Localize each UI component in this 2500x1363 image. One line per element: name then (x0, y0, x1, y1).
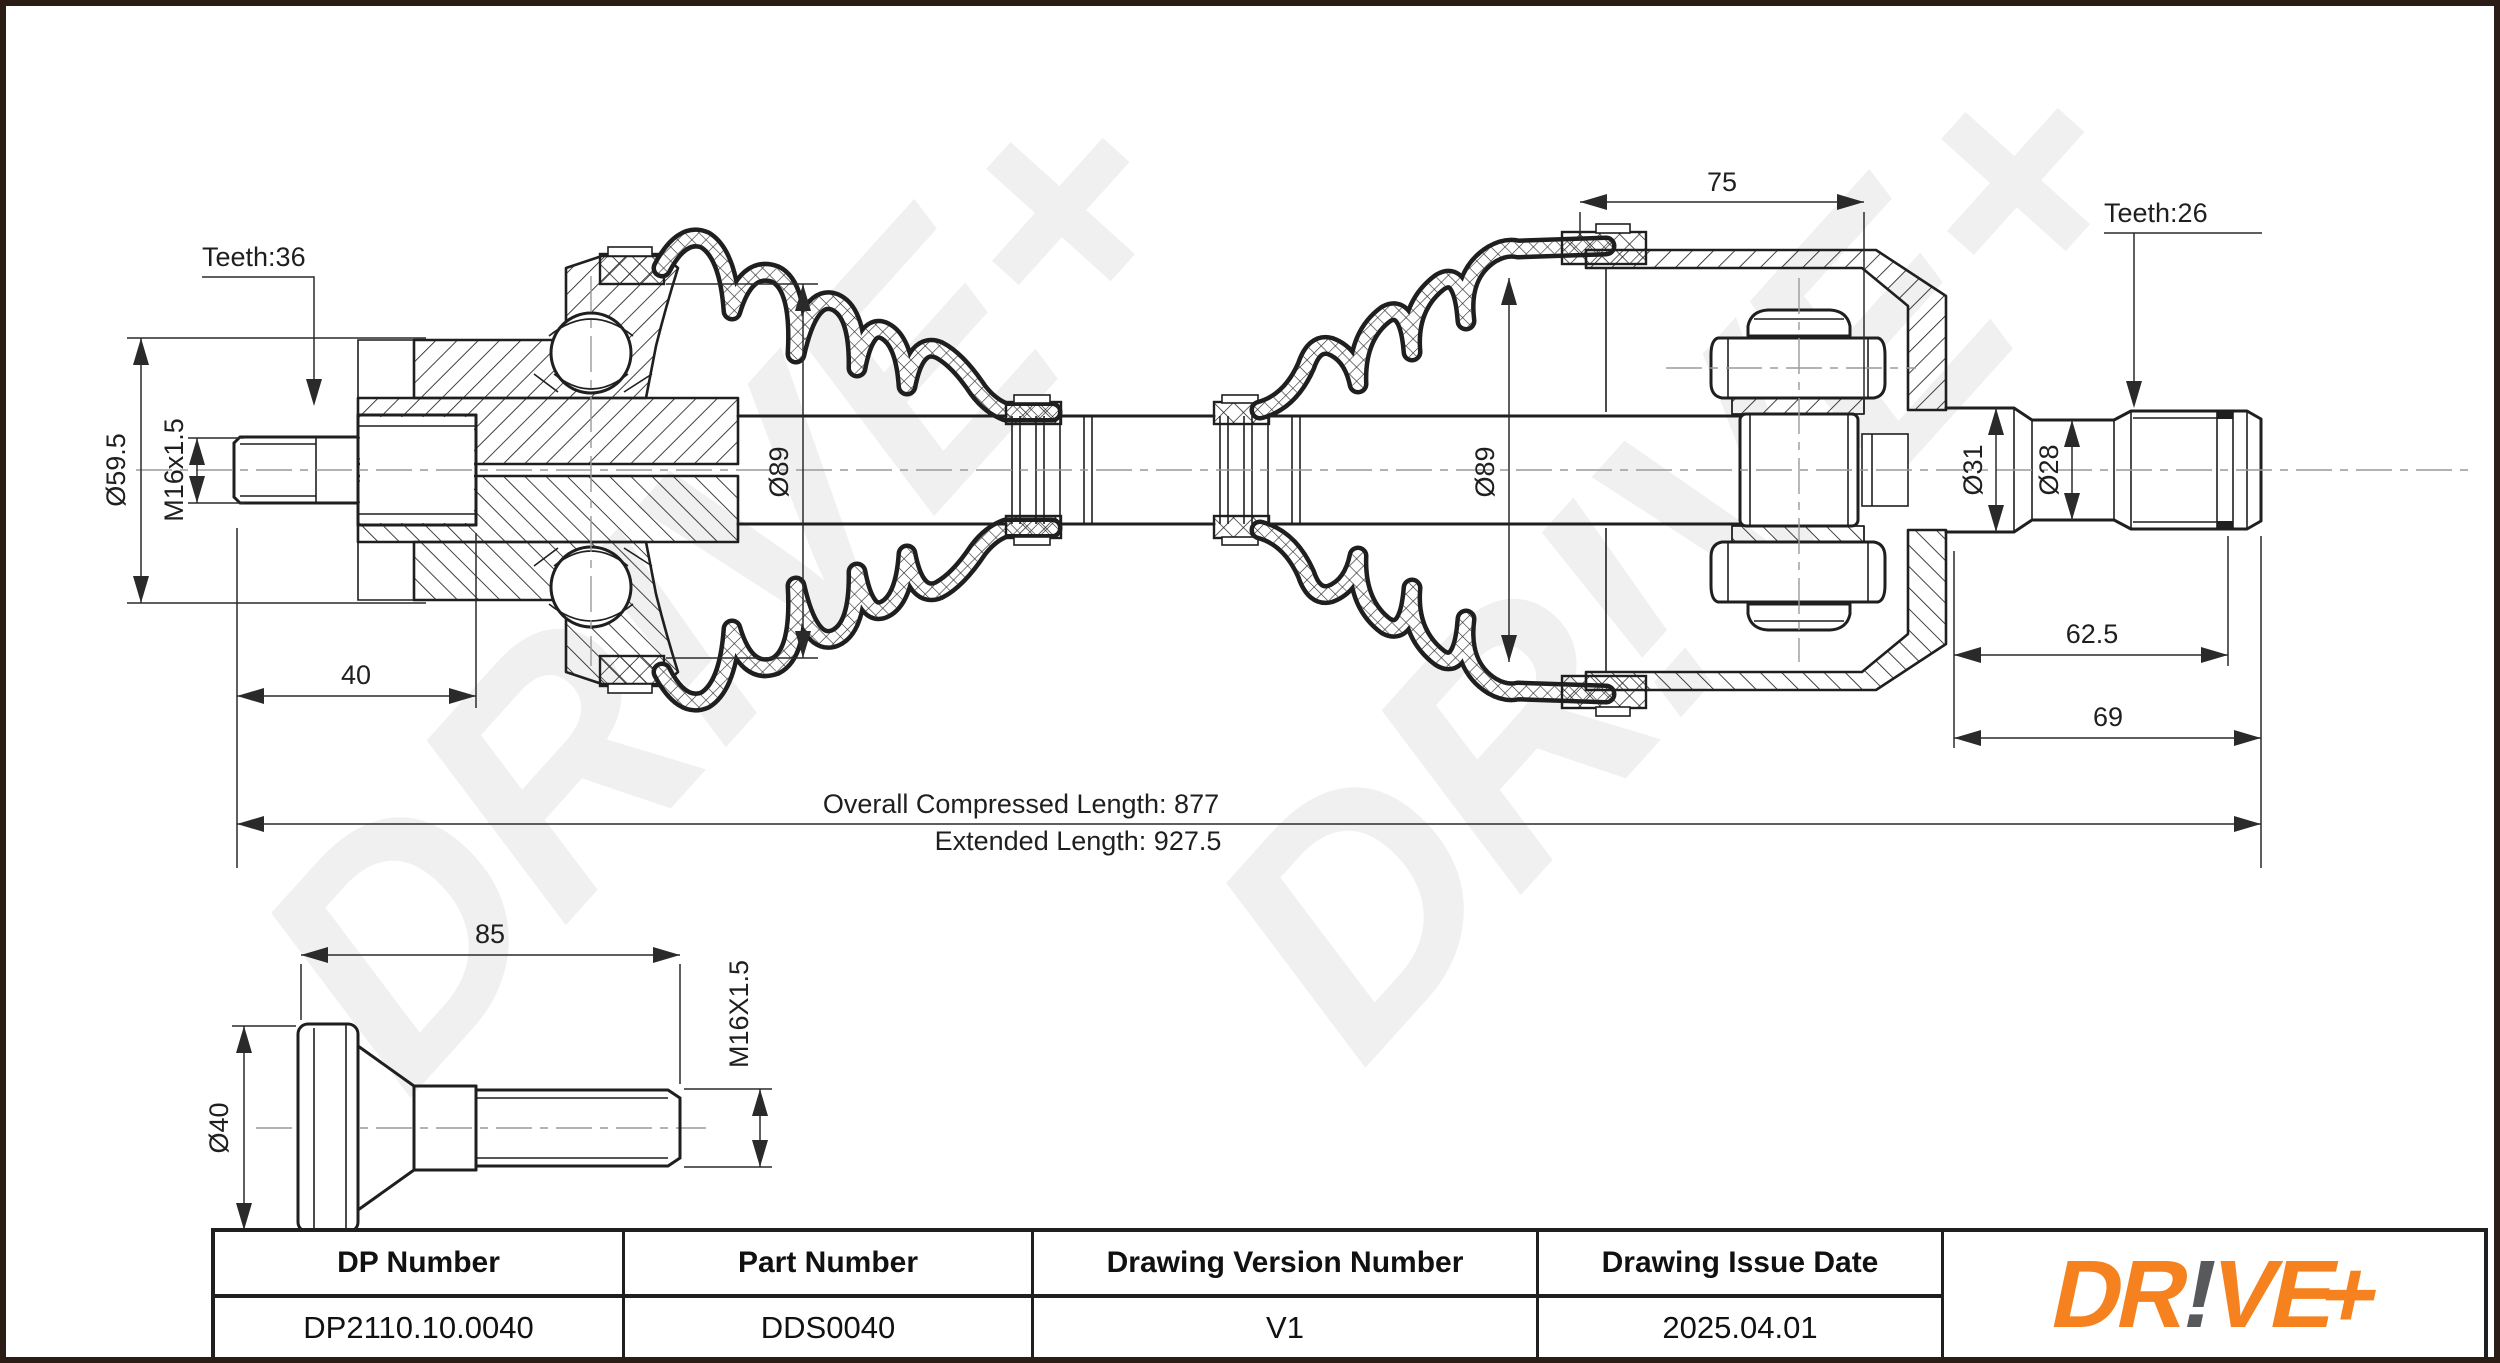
bolt-flange-dia-label: Ø40 (204, 1102, 234, 1153)
drawing-version-header: Drawing Version Number (1034, 1232, 1536, 1298)
spline-length-label: 62.5 (2066, 619, 2119, 649)
stub-length-label: 40 (341, 660, 371, 690)
dp-number-header: DP Number (215, 1232, 622, 1298)
title-block-col-issue-date: Drawing Issue Date 2025.04.01 (1539, 1232, 1944, 1357)
shaft-dia1-label: Ø31 (1958, 444, 1988, 495)
drawing-version-value: V1 (1034, 1298, 1536, 1357)
teeth-left-label: Teeth:36 (202, 242, 306, 272)
axle-technical-drawing: Teeth:36 Ø59.5 M16x1.5 40 Ø89 (6, 6, 2500, 1363)
outer-boot-dia-label: Ø89 (764, 446, 794, 497)
bolt-thread-spec-label: M16X1.5 (724, 960, 754, 1068)
teeth-right-label: Teeth:26 (2104, 198, 2208, 228)
bolt-length-label: 85 (475, 919, 505, 949)
logo-text-dr: DR (2042, 1241, 2195, 1348)
extended-length-label: Extended Length: 927.5 (935, 826, 1222, 856)
dp-number-value: DP2110.10.0040 (215, 1298, 622, 1357)
issue-date-header: Drawing Issue Date (1539, 1232, 1941, 1298)
driveplus-logo: DR!VE+ (2042, 1240, 2386, 1350)
title-block-col-dp-number: DP Number DP2110.10.0040 (215, 1232, 625, 1357)
title-block-col-part-number: Part Number DDS0040 (625, 1232, 1034, 1357)
brand-logo-cell: DR!VE+ (1944, 1232, 2484, 1357)
inner-joint-length-label: 75 (1707, 167, 1737, 197)
spline-dia-label: Ø59.5 (101, 433, 131, 507)
cv-axle-upper-section (358, 224, 1946, 464)
title-block: DP Number DP2110.10.0040 Part Number DDS… (211, 1228, 2488, 1357)
shaft-dia2-label: Ø28 (2034, 444, 2064, 495)
issue-date-value: 2025.04.01 (1539, 1298, 1941, 1357)
inner-boot-dia-label: Ø89 (1470, 446, 1500, 497)
title-block-col-version: Drawing Version Number V1 (1034, 1232, 1539, 1357)
part-number-value: DDS0040 (625, 1298, 1031, 1357)
part-number-header: Part Number (625, 1232, 1031, 1298)
thread-spec-label: M16x1.5 (159, 418, 189, 522)
drawing-page: DR!VE+ DR!VE+ (0, 0, 2500, 1363)
overall-compressed-length-label: Overall Compressed Length: 877 (823, 789, 1219, 819)
shaft-end-length-label: 69 (2093, 702, 2123, 732)
